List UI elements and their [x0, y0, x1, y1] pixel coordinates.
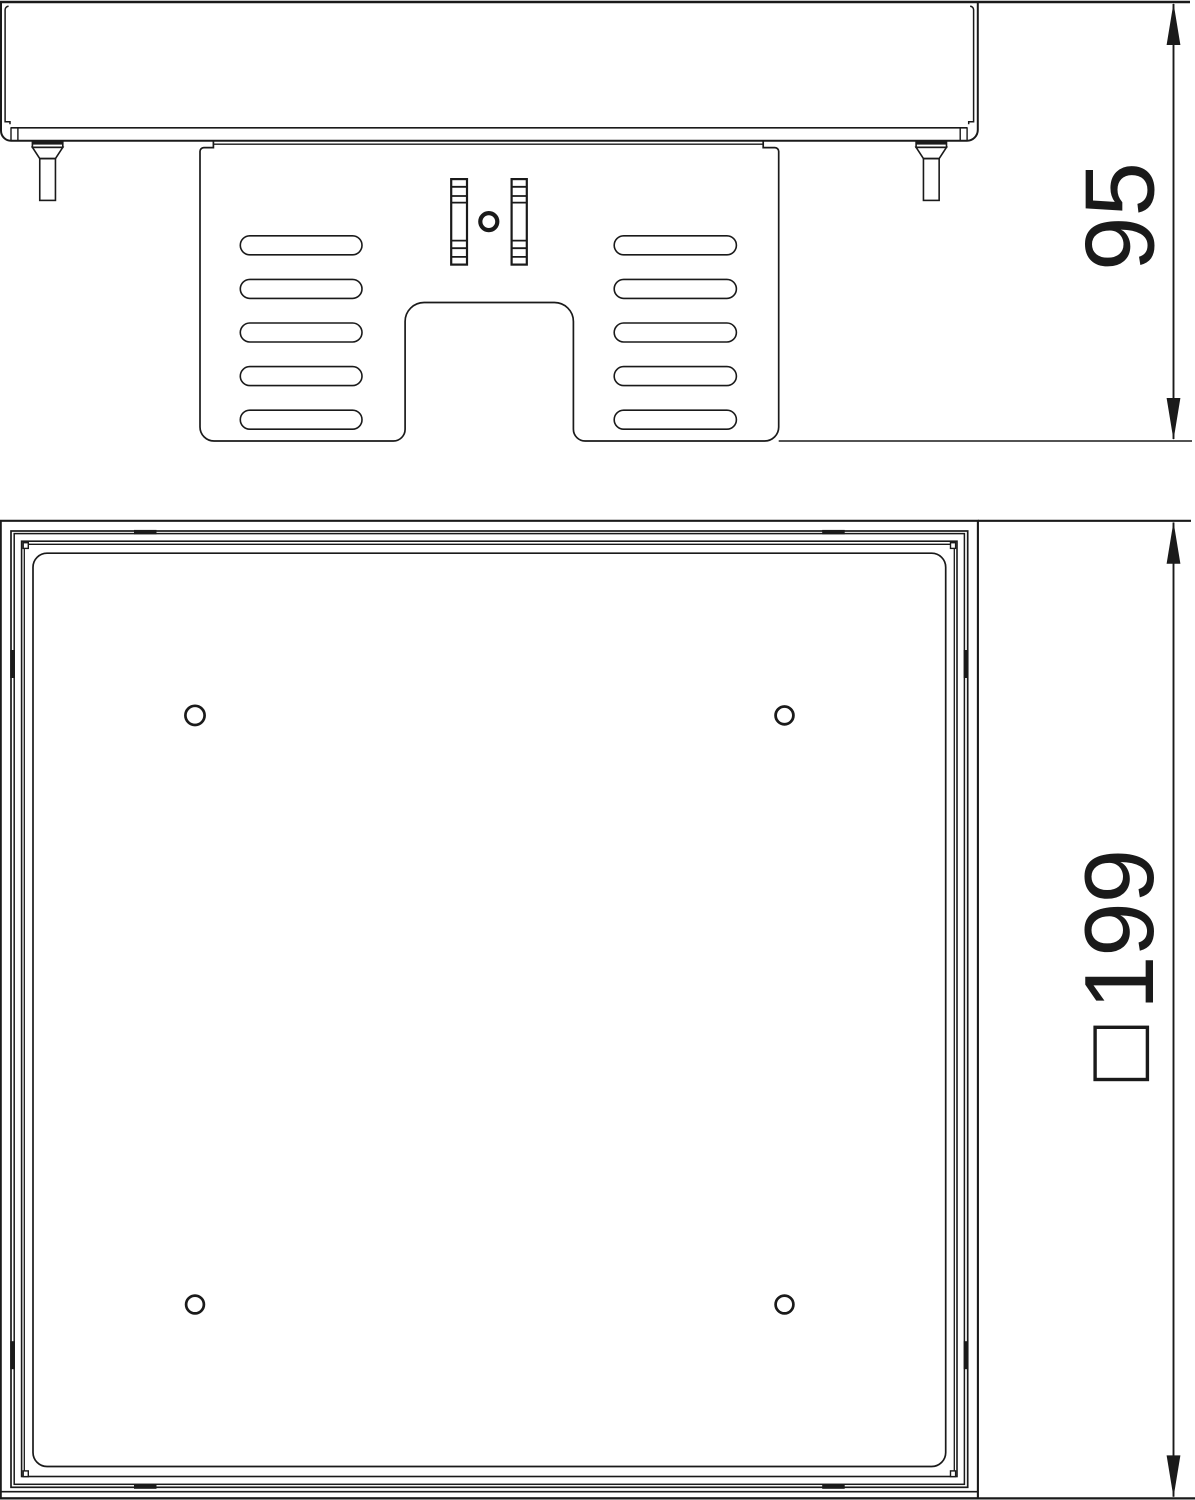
- svg-text:199: 199: [1064, 850, 1174, 1010]
- svg-text:95: 95: [1065, 162, 1175, 271]
